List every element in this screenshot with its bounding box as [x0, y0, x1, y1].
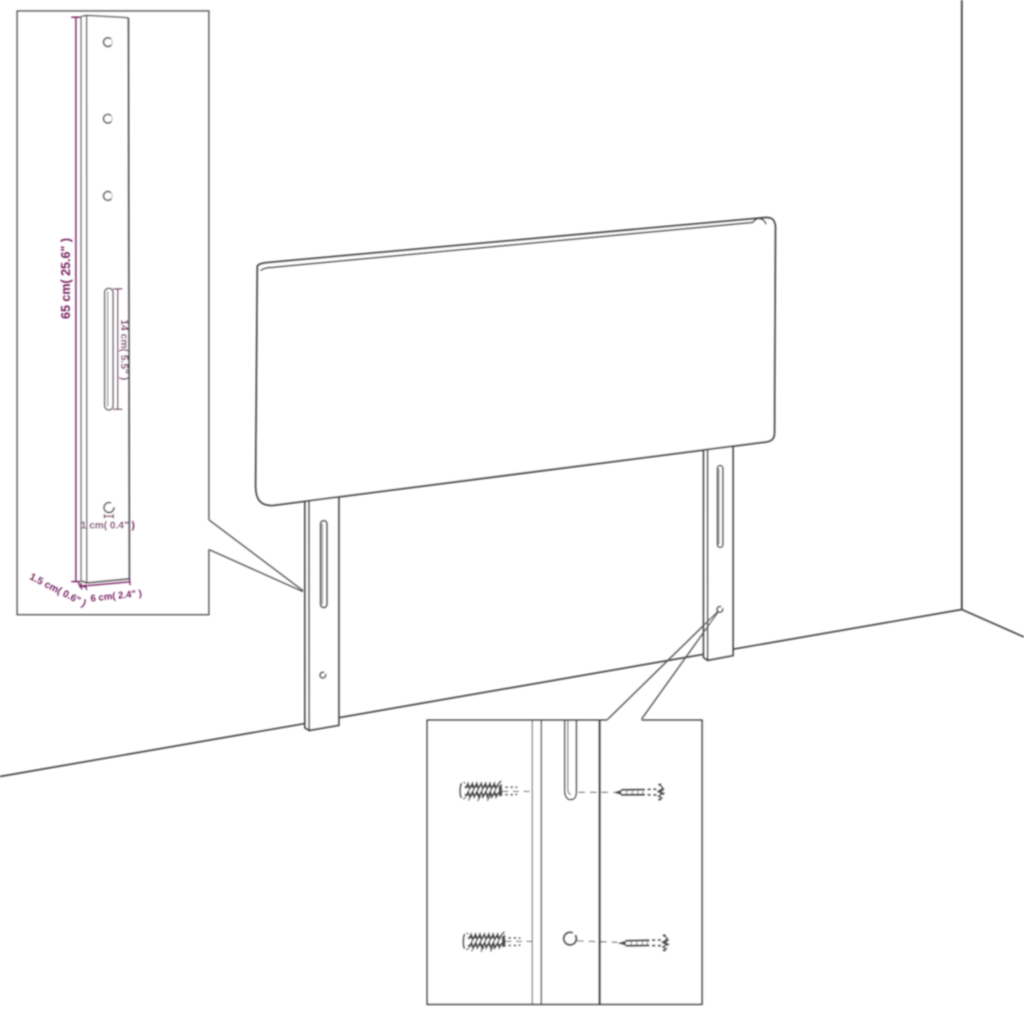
svg-text:14 cm( 5.5" ): 14 cm( 5.5" ) [118, 319, 129, 380]
svg-text:65 cm( 25.6" ): 65 cm( 25.6" ) [59, 238, 73, 319]
svg-text:1 cm( 0.4" ): 1 cm( 0.4" ) [81, 520, 135, 531]
